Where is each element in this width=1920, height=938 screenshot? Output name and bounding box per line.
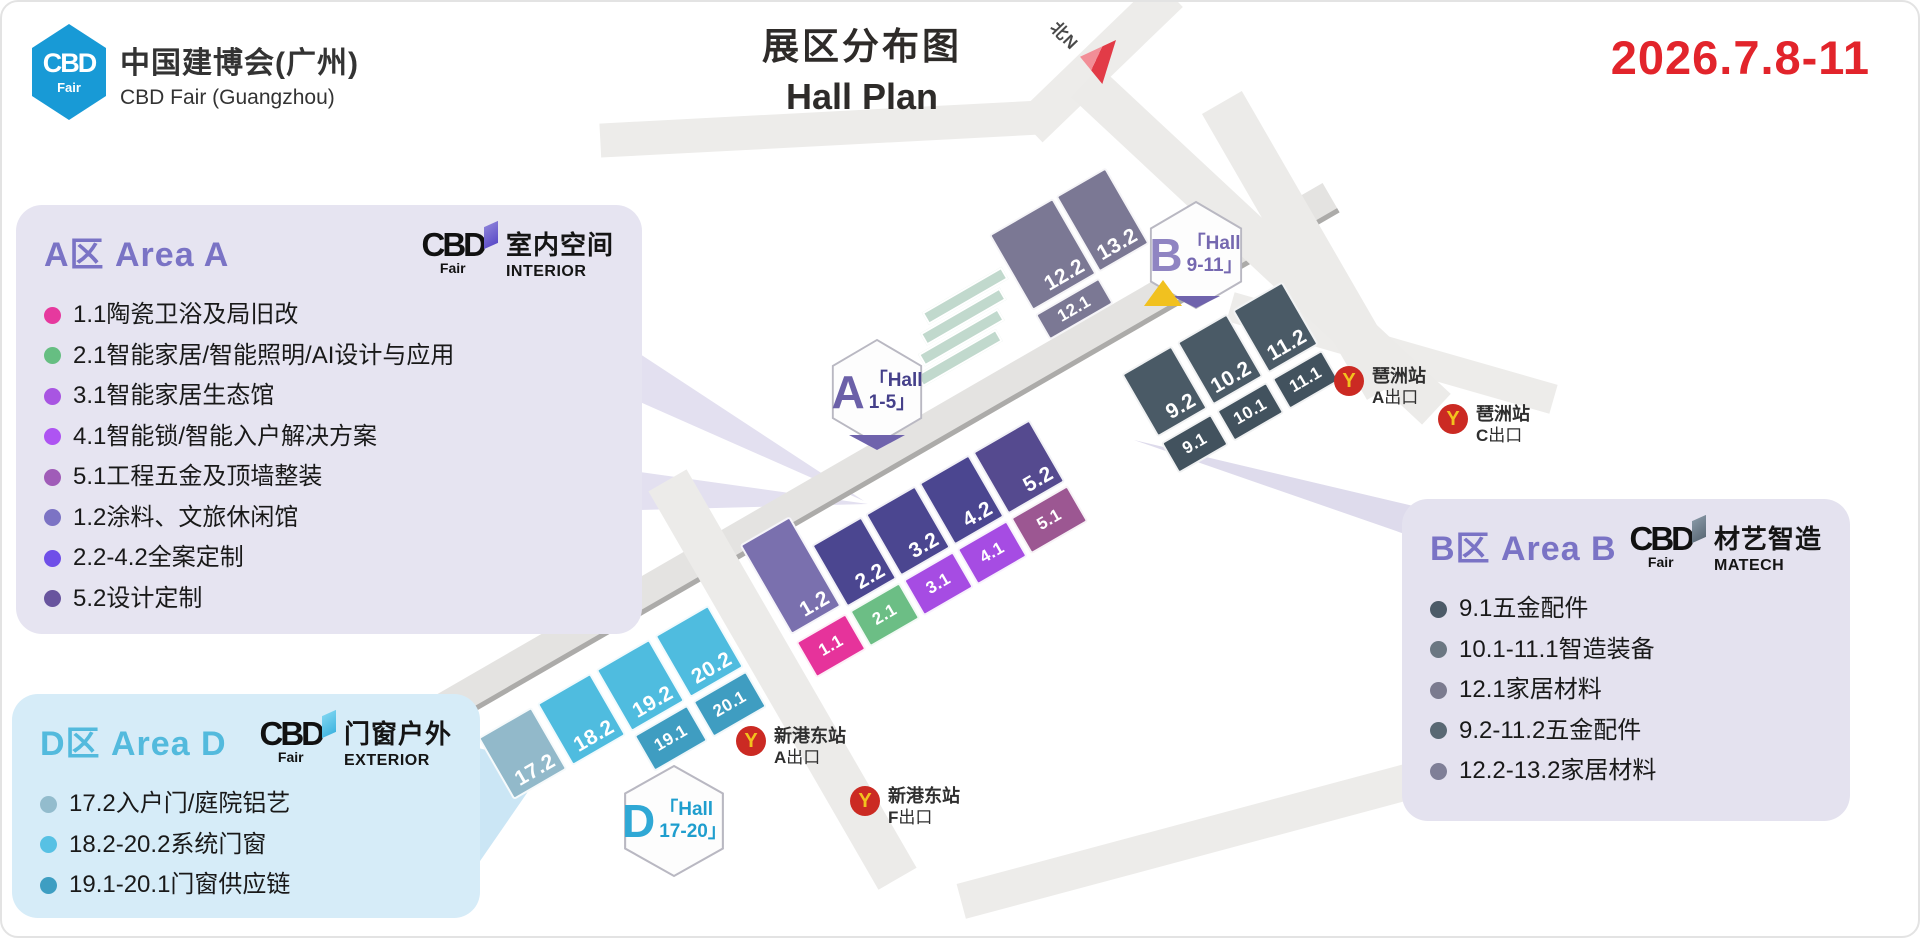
area-b-tagline-cn: 材艺智造 (1714, 519, 1822, 556)
badge-line2: 9-11」 (1187, 255, 1243, 277)
brand-name-cn: 中国建博会(广州) (120, 38, 359, 82)
badge-pointer-icon (849, 435, 905, 450)
legend-dot-icon (40, 796, 57, 813)
page-title: 展区分布图 Hall Plan (622, 16, 1102, 118)
metro-exit-新港东站-F: Y新港东站F出口 (850, 786, 960, 828)
legend-dot-icon (44, 347, 61, 364)
cbd-exterior-logo: CBD Fair 门窗户外 EXTERIOR (259, 714, 452, 770)
metro-station-name: 新港东站 (774, 726, 846, 747)
badge-letter: A (831, 369, 864, 415)
cbd-fair-label: Fair (440, 260, 466, 276)
area-d-tagline-en: EXTERIOR (344, 752, 452, 770)
metro-exit-琶洲站-C: Y琶洲站C出口 (1438, 404, 1530, 446)
legend-label: 1.2涂料、文旅休闲馆 (73, 498, 298, 539)
badge-letter: B (1149, 232, 1182, 278)
legend-item: 4.1智能锁/智能入户解决方案 (44, 417, 614, 458)
legend-item: 9.1五金配件 (1430, 589, 1822, 630)
legend-label: 9.2-11.2五金配件 (1459, 711, 1641, 752)
legend-label: 2.1智能家居/智能照明/AI设计与应用 (73, 336, 454, 377)
metro-logo-icon: Y (1438, 404, 1468, 434)
logo-abbr: CBD (43, 50, 96, 77)
legend-item: 19.1-20.1门窗供应链 (40, 865, 452, 906)
legend-label: 5.1工程五金及顶墙整装 (73, 457, 322, 498)
flag-icon (322, 710, 336, 738)
badge-line2: 17-20」 (659, 821, 726, 843)
metro-logo-icon: Y (736, 726, 766, 756)
legend-item: 1.2涂料、文旅休闲馆 (44, 498, 614, 539)
hall-label: 2.1 (869, 600, 901, 630)
badge-line2: 1-5」 (869, 392, 923, 414)
area-d-tagline-cn: 门窗户外 (344, 714, 452, 751)
metro-exit-琶洲站-A: Y琶洲站A出口 (1334, 366, 1426, 408)
legend-label: 4.1智能锁/智能入户解决方案 (73, 417, 377, 458)
legend-label: 3.1智能家居生态馆 (73, 376, 274, 417)
area-b-panel: B区 Area B CBD Fair 材艺智造 MATECH 9.1五金配件10… (1402, 499, 1850, 821)
area-a-tagline-en: INTERIOR (506, 263, 614, 281)
legend-item: 10.1-11.1智造装备 (1430, 630, 1822, 671)
legend-label: 12.1家居材料 (1459, 670, 1602, 711)
metro-exit-label: F出口 (888, 807, 960, 828)
legend-label: 10.1-11.1智造装备 (1459, 630, 1655, 671)
hall-label: 1.1 (815, 631, 847, 661)
legend-dot-icon (44, 590, 61, 607)
legend-dot-icon (40, 877, 57, 894)
hall-label: 19.1 (651, 721, 691, 756)
cbd-wordmark: CBD (421, 230, 484, 260)
legend-dot-icon (44, 428, 61, 445)
legend-label: 2.2-4.2全案定制 (73, 538, 244, 579)
legend-item: 17.2入户门/庭院铝艺 (40, 784, 452, 825)
cbd-fair-logo: CBD Fair (32, 24, 106, 120)
hall-label: 13.2 (1093, 224, 1142, 266)
legend-dot-icon (1430, 641, 1447, 658)
legend-dot-icon (40, 836, 57, 853)
area-b-tagline-en: MATECH (1714, 557, 1822, 575)
legend-label: 9.1五金配件 (1459, 589, 1588, 630)
area-b-list: 9.1五金配件10.1-11.1智造装备12.1家居材料9.2-11.2五金配件… (1430, 589, 1822, 792)
legend-label: 19.1-20.1门窗供应链 (69, 865, 290, 906)
legend-item: 3.1智能家居生态馆 (44, 376, 614, 417)
hall-label: 17.2 (511, 749, 560, 791)
hall-label: 5.1 (1033, 505, 1065, 535)
gate-marker-icon (1144, 280, 1182, 306)
cbd-wordmark: CBD (259, 719, 322, 749)
legend-item: 2.2-4.2全案定制 (44, 538, 614, 579)
badge-line1: 「Hall (869, 370, 923, 392)
hall-label: 3.1 (923, 569, 955, 599)
brand-block: 中国建博会(广州) CBD Fair (Guangzhou) (120, 38, 359, 110)
legend-dot-icon (1430, 682, 1447, 699)
hall-label: 4.1 (976, 538, 1008, 568)
area-a-panel: A区 Area A CBD Fair 室内空间 INTERIOR 1.1陶瓷卫浴… (16, 205, 642, 634)
logo-sub: Fair (57, 80, 81, 95)
legend-item: 18.2-20.2系统门窗 (40, 825, 452, 866)
hall-badge-d: D 「Hall17-20」 (622, 764, 726, 878)
legend-label: 18.2-20.2系统门窗 (69, 825, 266, 866)
hall-label: 11.1 (1286, 363, 1326, 397)
legend-label: 17.2入户门/庭院铝艺 (69, 784, 290, 825)
title-en: Hall Plan (622, 76, 1102, 118)
cbd-wordmark: CBD (1629, 524, 1692, 554)
legend-dot-icon (1430, 601, 1447, 618)
cbd-matech-logo: CBD Fair 材艺智造 MATECH (1629, 519, 1822, 575)
metro-exit-label: A出口 (1372, 387, 1426, 408)
legend-dot-icon (44, 469, 61, 486)
hall-label: 18.2 (570, 715, 619, 757)
legend-dot-icon (1430, 722, 1447, 739)
legend-label: 1.1陶瓷卫浴及局旧改 (73, 295, 298, 336)
legend-dot-icon (1430, 763, 1447, 780)
legend-item: 12.1家居材料 (1430, 670, 1822, 711)
hall-plan-poster: 1.21.12.22.13.23.14.24.15.25.19.29.110.2… (0, 0, 1920, 938)
flag-icon (1692, 515, 1706, 543)
hall-label: 10.1 (1230, 394, 1270, 429)
area-a-title: A区 Area A (44, 227, 229, 276)
cbd-fair-label: Fair (278, 749, 304, 765)
hall-label: 20.1 (710, 687, 750, 722)
metro-station-name: 琶洲站 (1372, 366, 1426, 387)
legend-item: 5.2设计定制 (44, 579, 614, 620)
legend-label: 12.2-13.2家居材料 (1459, 751, 1656, 792)
metro-exit-新港东站-A: Y新港东站A出口 (736, 726, 846, 768)
legend-dot-icon (44, 388, 61, 405)
badge-line1: 「Hall (1187, 233, 1243, 255)
badge-line1: 「Hall (659, 799, 726, 821)
title-cn: 展区分布图 (622, 16, 1102, 70)
legend-item: 9.2-11.2五金配件 (1430, 711, 1822, 752)
metro-station-name: 新港东站 (888, 786, 960, 807)
metro-logo-icon: Y (1334, 366, 1364, 396)
metro-exit-label: A出口 (774, 747, 846, 768)
hall-label: 9.2 (1162, 389, 1201, 425)
legend-item: 5.1工程五金及顶墙整装 (44, 457, 614, 498)
legend-dot-icon (44, 550, 61, 567)
legend-label: 5.2设计定制 (73, 579, 202, 620)
brand-name-en: CBD Fair (Guangzhou) (120, 86, 359, 110)
area-b-title: B区 Area B (1430, 521, 1617, 570)
metro-station-name: 琶洲站 (1476, 404, 1530, 425)
metro-logo-icon: Y (850, 786, 880, 816)
legend-item: 2.1智能家居/智能照明/AI设计与应用 (44, 336, 614, 377)
cbd-fair-label: Fair (1648, 554, 1674, 570)
area-a-list: 1.1陶瓷卫浴及局旧改2.1智能家居/智能照明/AI设计与应用3.1智能家居生态… (44, 295, 614, 619)
flag-icon (484, 221, 498, 249)
area-d-list: 17.2入户门/庭院铝艺18.2-20.2系统门窗19.1-20.1门窗供应链 (40, 784, 452, 906)
hall-label: 1.2 (796, 586, 835, 622)
cbd-interior-logo: CBD Fair 室内空间 INTERIOR (421, 225, 614, 281)
badge-letter: D (622, 798, 655, 844)
legend-dot-icon (44, 509, 61, 526)
area-d-title: D区 Area D (40, 716, 227, 765)
legend-item: 1.1陶瓷卫浴及局旧改 (44, 295, 614, 336)
hall-badge-a: A 「Hall1-5」 (830, 338, 924, 446)
area-d-panel: D区 Area D CBD Fair 门窗户外 EXTERIOR 17.2入户门… (12, 694, 480, 918)
legend-dot-icon (44, 307, 61, 324)
event-date: 2026.7.8-11 (1611, 30, 1870, 85)
area-a-tagline-cn: 室内空间 (506, 225, 614, 262)
legend-item: 12.2-13.2家居材料 (1430, 751, 1822, 792)
hall-label: 9.1 (1179, 429, 1211, 459)
metro-exit-label: C出口 (1476, 425, 1530, 446)
